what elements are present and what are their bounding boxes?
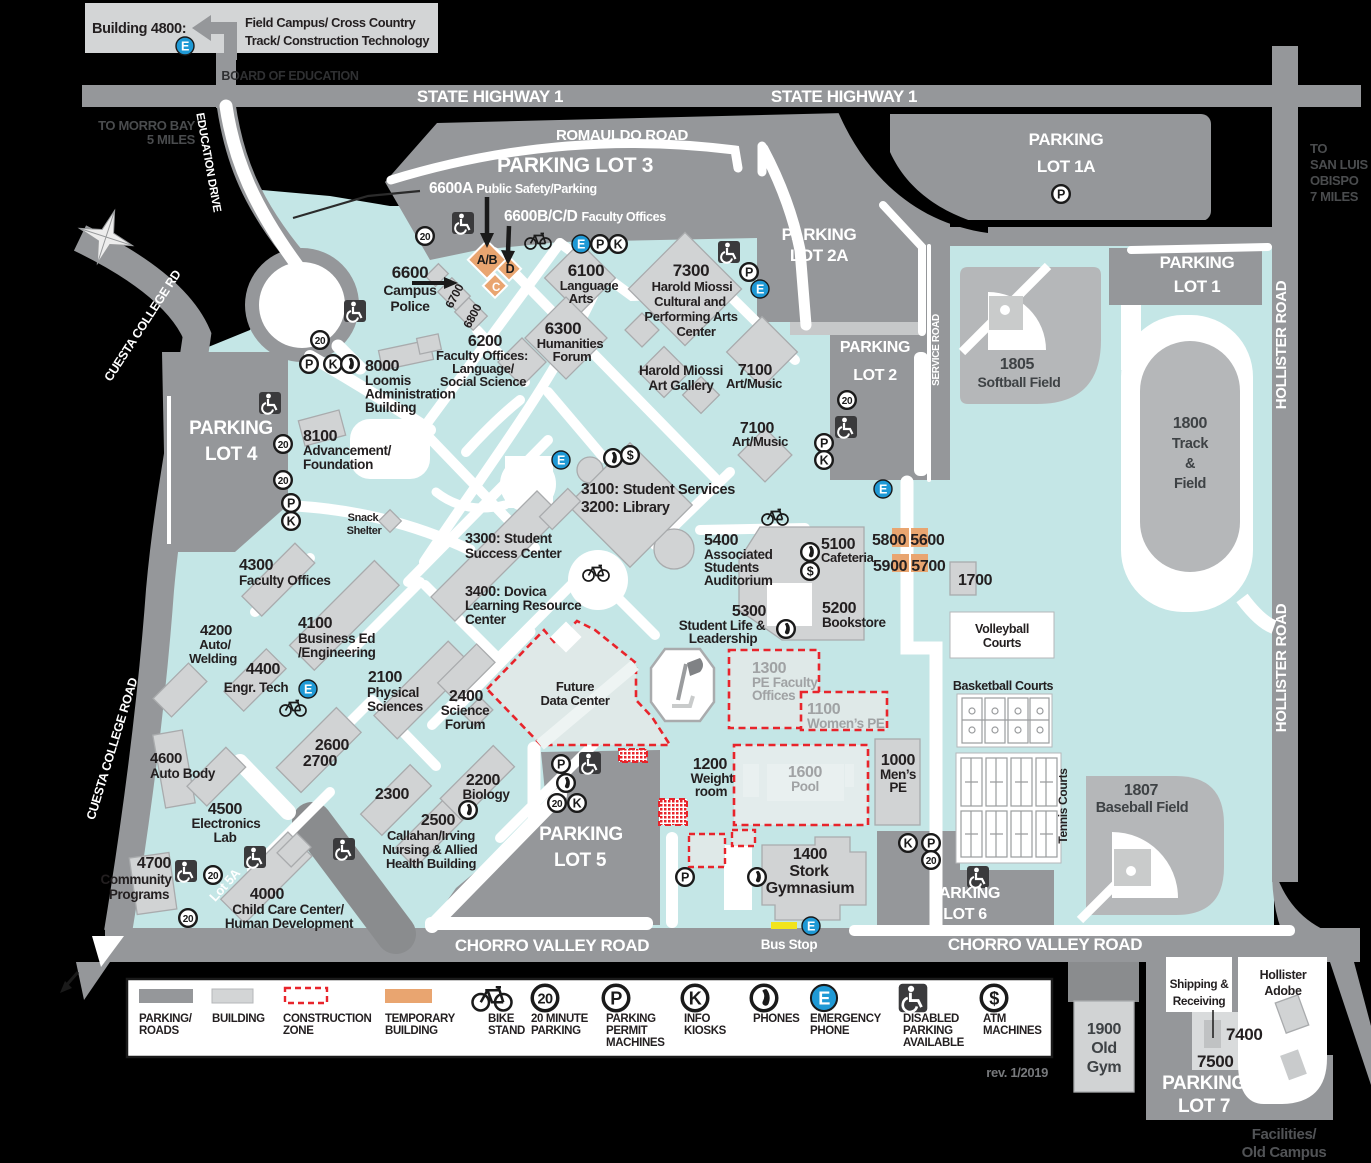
svg-text:ZONE: ZONE	[283, 1025, 314, 1037]
svg-text:Leadership: Leadership	[689, 631, 758, 646]
svg-text:7300: 7300	[673, 261, 709, 280]
svg-text:Harold Miossi: Harold Miossi	[639, 363, 723, 378]
svg-text:PARKING: PARKING	[1160, 253, 1235, 272]
svg-text:Human Development: Human Development	[225, 916, 354, 931]
svg-text:2700: 2700	[303, 753, 338, 770]
svg-text:PARKING LOT 3: PARKING LOT 3	[497, 154, 653, 177]
svg-text:Tennis Courts: Tennis Courts	[1056, 768, 1070, 844]
svg-text:CHORRO VALLEY ROAD: CHORRO VALLEY ROAD	[948, 935, 1142, 954]
svg-text:Baseball Field: Baseball Field	[1096, 800, 1189, 816]
svg-text:1900: 1900	[1087, 1021, 1122, 1038]
svg-text:3200: Library: 3200: Library	[581, 499, 670, 516]
svg-text:Auto Body: Auto Body	[150, 766, 216, 781]
svg-text:5900 5700: 5900 5700	[873, 558, 946, 575]
svg-text:PARKING: PARKING	[930, 885, 1000, 902]
svg-text:Welding: Welding	[189, 651, 237, 666]
svg-text:ATM: ATM	[983, 1013, 1006, 1025]
svg-text:Bus Stop: Bus Stop	[761, 937, 818, 952]
svg-text:Track: Track	[1172, 436, 1209, 452]
svg-text:Stork: Stork	[789, 863, 829, 880]
svg-text:Foundation: Foundation	[303, 457, 373, 472]
svg-text:Advancement/: Advancement/	[303, 443, 392, 458]
svg-text:4400: 4400	[246, 661, 281, 678]
svg-text:Field Campus/ Cross Country: Field Campus/ Cross Country	[245, 15, 417, 30]
svg-text:Facilities/: Facilities/	[1252, 1126, 1318, 1143]
svg-text:Hollister: Hollister	[1260, 968, 1307, 982]
svg-text:Nursing & Allied: Nursing & Allied	[382, 842, 477, 857]
svg-text:Basketball Courts: Basketball Courts	[953, 679, 1054, 693]
svg-text:Auditorium: Auditorium	[704, 573, 773, 588]
svg-text:Performing Arts: Performing Arts	[644, 309, 737, 324]
svg-text:TEMPORARY: TEMPORARY	[385, 1013, 456, 1025]
svg-text:2300: 2300	[375, 786, 410, 803]
svg-text:Police: Police	[390, 298, 430, 314]
svg-text:LOT 1A: LOT 1A	[1037, 157, 1095, 176]
svg-text:4100: 4100	[298, 615, 333, 632]
svg-text:2600: 2600	[315, 737, 350, 754]
svg-text:Forum: Forum	[445, 717, 486, 732]
svg-text:Success Center: Success Center	[465, 546, 562, 561]
svg-text:OBISPO: OBISPO	[1310, 173, 1359, 188]
svg-text:1800: 1800	[1173, 415, 1208, 432]
svg-text:STAND: STAND	[488, 1025, 525, 1037]
svg-text:6600A Public Safety/Parking: 6600A Public Safety/Parking	[429, 180, 597, 197]
svg-text:PARKING: PARKING	[903, 1025, 953, 1037]
svg-text:Adobe: Adobe	[1264, 984, 1302, 998]
svg-text:Future: Future	[556, 679, 594, 694]
svg-text:LOT 6: LOT 6	[943, 906, 987, 923]
svg-text:Art/Music: Art/Music	[726, 376, 782, 391]
svg-text:Softball Field: Softball Field	[978, 374, 1061, 390]
svg-text:4700: 4700	[137, 855, 172, 872]
svg-text:PARKING: PARKING	[189, 418, 273, 439]
svg-text:Art/Music: Art/Music	[732, 434, 788, 449]
svg-text:Center: Center	[676, 324, 715, 339]
svg-text:C: C	[492, 282, 500, 294]
svg-text:Lab: Lab	[214, 830, 237, 845]
svg-text:Track/ Construction Technology: Track/ Construction Technology	[245, 33, 430, 48]
svg-text:ROMAULDO ROAD: ROMAULDO ROAD	[556, 127, 689, 144]
svg-text:Health Building: Health Building	[386, 856, 476, 871]
svg-text:Art Gallery: Art Gallery	[648, 378, 714, 393]
svg-text:Shipping &: Shipping &	[1170, 977, 1230, 991]
svg-text:PARKING/: PARKING/	[139, 1013, 193, 1025]
svg-text:Pool: Pool	[791, 779, 819, 794]
svg-text:Science: Science	[441, 703, 490, 718]
svg-text:Volleyball: Volleyball	[975, 622, 1029, 636]
svg-text:4000: 4000	[250, 886, 285, 903]
svg-text:Cultural and: Cultural and	[654, 294, 726, 309]
svg-text:4600: 4600	[150, 750, 182, 767]
svg-text:PE: PE	[889, 780, 907, 795]
svg-text:TO MORRO BAY: TO MORRO BAY	[98, 118, 196, 133]
svg-text:Electronics: Electronics	[192, 816, 261, 831]
svg-text:MACHINES: MACHINES	[606, 1037, 665, 1049]
svg-text:Sciences: Sciences	[367, 699, 423, 714]
svg-text:6600: 6600	[392, 263, 428, 282]
svg-text:Old: Old	[1091, 1040, 1117, 1057]
svg-text:SERVICE ROAD: SERVICE ROAD	[931, 314, 942, 386]
svg-text:7400: 7400	[1226, 1025, 1262, 1044]
svg-text:4300: 4300	[239, 557, 274, 574]
svg-text:Faculty Offices: Faculty Offices	[239, 573, 331, 588]
svg-text:7500: 7500	[1197, 1052, 1233, 1071]
svg-text:Learning Resource: Learning Resource	[465, 598, 582, 613]
svg-text:HOLLISTER ROAD: HOLLISTER ROAD	[1273, 280, 1290, 409]
svg-text:BIKE: BIKE	[488, 1013, 515, 1025]
svg-text:Receiving: Receiving	[1173, 994, 1226, 1008]
svg-text:1807: 1807	[1124, 782, 1159, 799]
svg-text:PHONE: PHONE	[810, 1025, 850, 1037]
svg-text:PARKING: PARKING	[840, 339, 910, 356]
svg-text:LOT 4: LOT 4	[205, 444, 258, 465]
svg-text:2100: 2100	[368, 669, 403, 686]
svg-text:PARKING: PARKING	[539, 824, 623, 845]
svg-text:Programs: Programs	[109, 887, 169, 902]
svg-text:BOARD OF EDUCATION: BOARD OF EDUCATION	[221, 69, 359, 83]
svg-text:A/B: A/B	[477, 253, 498, 267]
svg-text:rev. 1/2019: rev. 1/2019	[986, 1065, 1048, 1080]
svg-text:Old Campus: Old Campus	[1242, 1144, 1327, 1161]
svg-text:Courts: Courts	[983, 636, 1022, 650]
svg-text:20 MINUTE: 20 MINUTE	[531, 1013, 589, 1025]
svg-text:1400: 1400	[793, 846, 828, 863]
svg-text:CONSTRUCTION: CONSTRUCTION	[283, 1013, 371, 1025]
svg-text:AVAILABLE: AVAILABLE	[903, 1037, 965, 1049]
svg-text:Child Care Center/: Child Care Center/	[232, 902, 344, 917]
svg-text:SAN LUIS: SAN LUIS	[1310, 157, 1369, 172]
svg-text:PHONES: PHONES	[753, 1013, 800, 1025]
svg-text:PARKING: PARKING	[1029, 130, 1104, 149]
svg-text:PARKING: PARKING	[606, 1013, 656, 1025]
svg-text:Auto/: Auto/	[199, 637, 231, 652]
svg-text:DISABLED: DISABLED	[903, 1013, 959, 1025]
svg-text:Cafeteria: Cafeteria	[821, 550, 875, 565]
svg-text:Offices: Offices	[752, 688, 795, 703]
svg-text:1700: 1700	[958, 572, 993, 589]
svg-text:Bookstore: Bookstore	[822, 615, 886, 630]
svg-text:5 MILES: 5 MILES	[147, 132, 196, 147]
svg-text:BUILDING: BUILDING	[385, 1025, 438, 1037]
svg-text:5800 5600: 5800 5600	[872, 532, 945, 549]
svg-text:2500: 2500	[421, 812, 456, 829]
svg-text:room: room	[695, 784, 728, 799]
svg-text:Women’s PE: Women’s PE	[807, 716, 885, 731]
svg-text:Harold Miossi: Harold Miossi	[652, 279, 733, 294]
svg-text:LOT 2A: LOT 2A	[790, 246, 848, 265]
svg-text:LOT 1: LOT 1	[1174, 277, 1220, 296]
svg-text:HOLLISTER ROAD: HOLLISTER ROAD	[1273, 603, 1290, 732]
svg-text:PARKING: PARKING	[782, 225, 857, 244]
svg-text:7 MILES: 7 MILES	[1310, 189, 1359, 204]
svg-text:BUILDING: BUILDING	[212, 1013, 265, 1025]
svg-text:CHORRO VALLEY ROAD: CHORRO VALLEY ROAD	[455, 936, 649, 955]
svg-text:Community: Community	[100, 872, 172, 887]
svg-text:Business Ed: Business Ed	[298, 631, 375, 646]
svg-text:&: &	[1185, 456, 1196, 472]
svg-text:STATE HIGHWAY 1: STATE HIGHWAY 1	[417, 87, 563, 106]
svg-text:6600B/C/D Faculty Offices: 6600B/C/D Faculty Offices	[504, 208, 666, 225]
svg-text:3100: Student Services: 3100: Student Services	[581, 481, 735, 498]
svg-text:TO: TO	[1310, 141, 1327, 156]
svg-text:Shelter: Shelter	[347, 525, 383, 537]
svg-text:Building 4800:: Building 4800:	[92, 21, 186, 37]
svg-text:Center: Center	[465, 612, 507, 627]
svg-text:Data Center: Data Center	[540, 693, 609, 708]
svg-text:MACHINES: MACHINES	[983, 1025, 1042, 1037]
svg-text:LOT 2: LOT 2	[853, 367, 897, 384]
svg-text:Engr. Tech: Engr. Tech	[224, 680, 289, 695]
svg-text:/Engineering: /Engineering	[298, 645, 376, 660]
svg-text:Physical: Physical	[367, 685, 419, 700]
svg-text:D: D	[506, 262, 515, 276]
svg-text:INFO: INFO	[684, 1013, 710, 1025]
svg-text:Gym: Gym	[1087, 1059, 1122, 1076]
svg-text:3300: Student: 3300: Student	[465, 531, 553, 547]
svg-text:PARKING: PARKING	[1162, 1073, 1246, 1094]
svg-text:LOT 7: LOT 7	[1178, 1096, 1230, 1117]
svg-text:Snack: Snack	[348, 512, 380, 524]
svg-text:PARKING: PARKING	[531, 1025, 581, 1037]
svg-text:KIOSKS: KIOSKS	[684, 1025, 727, 1037]
svg-text:Biology: Biology	[462, 787, 510, 802]
svg-text:Field: Field	[1174, 476, 1206, 492]
svg-text:ROADS: ROADS	[139, 1025, 179, 1037]
svg-text:STATE HIGHWAY 1: STATE HIGHWAY 1	[771, 87, 917, 106]
svg-text:Forum: Forum	[553, 349, 592, 364]
svg-text:1805: 1805	[1000, 356, 1035, 373]
svg-text:Callahan/Irving: Callahan/Irving	[387, 828, 475, 843]
svg-text:PERMIT: PERMIT	[606, 1025, 648, 1037]
svg-text:EMERGENCY: EMERGENCY	[810, 1013, 882, 1025]
svg-text:Arts: Arts	[569, 291, 594, 306]
svg-text:Gymnasium: Gymnasium	[766, 880, 855, 897]
svg-text:LOT 5: LOT 5	[554, 850, 607, 871]
